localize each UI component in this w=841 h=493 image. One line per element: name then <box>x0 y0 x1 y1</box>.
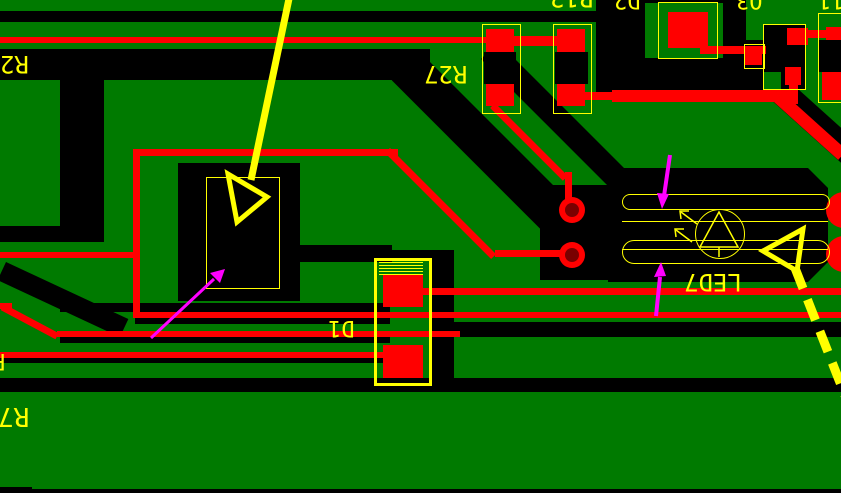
label-d1: D1 <box>328 316 355 338</box>
pcb-canvas: R2 R27 R12 D2 Q3 11 D1 LED7 R R7 <box>0 0 841 493</box>
label-led7: LED7 <box>684 270 742 294</box>
arrow-up-left-at-led7-icon <box>763 229 841 408</box>
annotation-overlay <box>0 0 841 493</box>
label-q3: Q3 <box>736 0 763 10</box>
pointer-arrow-component-icon <box>151 269 225 338</box>
pointer-arrow-led-bottom-icon <box>654 262 666 316</box>
label-r-partial: R <box>0 349 5 371</box>
label-r11-partial: 11 <box>818 0 841 10</box>
label-r12: R12 <box>550 0 593 10</box>
label-r27: R27 <box>424 62 467 86</box>
label-d2: D2 <box>614 0 641 10</box>
arrow-down-into-component-icon <box>228 0 290 222</box>
led-diode-symbol-icon <box>700 212 738 247</box>
label-r7: R7 <box>0 403 29 429</box>
led-emission-arrow-icon <box>675 211 697 242</box>
label-r2: R2 <box>0 52 29 76</box>
pointer-arrow-led-top-icon <box>657 155 670 209</box>
